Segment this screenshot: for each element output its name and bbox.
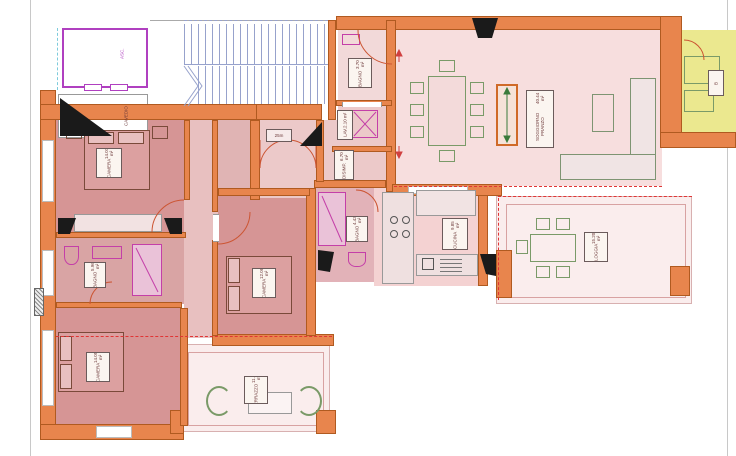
part-corridor-right-a (212, 120, 218, 212)
part-hall2-bottom (314, 180, 386, 188)
window-left-3 (42, 330, 54, 406)
dining-chair-l3 (410, 126, 424, 138)
washing-machine (352, 110, 378, 138)
burner-4 (402, 230, 410, 238)
bed-2-pillow-bottom (60, 364, 72, 389)
burner-1 (390, 216, 398, 224)
floor-plan: ASC. CAVEDIO (0, 0, 736, 456)
dining-chair-r3 (470, 126, 484, 138)
bed-1-pillow-left (88, 132, 114, 144)
wall-under-stairs (40, 104, 258, 120)
drainer-kitchen (440, 258, 462, 272)
burner-3 (390, 230, 398, 238)
sofa-seat-horizontal (560, 154, 656, 180)
opening-dash-corridor (213, 214, 219, 242)
page-edge-left (30, 0, 31, 456)
dining-table (428, 76, 466, 146)
lift-wall-dashed (57, 28, 58, 90)
lift-label: ASC. (116, 40, 128, 68)
label-bedroom-3: CAMERA12.08 m² (252, 268, 276, 298)
wall-hatch-marker (34, 288, 44, 316)
label-terrace: TERRAZZO11.80 m² (244, 376, 268, 404)
part-bed1-bottom (56, 232, 186, 238)
stair-flight-upper (184, 24, 328, 64)
loggia-chair-left (516, 240, 528, 254)
part-bed1-right (184, 120, 190, 200)
sink-kitchen (422, 258, 434, 270)
dining-chair-r1 (470, 82, 484, 94)
shower-bath2 (318, 192, 346, 246)
label-loggia: LOGGIA15.20 m² (584, 232, 608, 262)
dashed-terrace-top (56, 336, 332, 337)
dashed-loggia-left (498, 198, 499, 300)
label-neighbor: B (708, 70, 724, 96)
part-bath1-bottom (56, 302, 182, 308)
part-bed3-right (306, 188, 316, 336)
label-bathroom-1: BAGNO5.96 m² (84, 262, 106, 288)
label-bathroom-2: BAGNO4.43 m² (346, 216, 368, 242)
lift-door-mark-left (84, 84, 102, 91)
label-bedroom-2: CAMERA14.05 m² (86, 352, 110, 382)
stair-landing-divider (184, 64, 328, 65)
dining-chair-l2 (410, 104, 424, 116)
part-corridor-right-b (212, 240, 218, 336)
opening-dash-laundry (342, 102, 382, 107)
kitchen-counter-left (382, 192, 414, 284)
loggia-chair-b1 (536, 266, 550, 278)
sink-bath1 (92, 246, 122, 259)
label-wc: BAGNO3.70 m² (348, 58, 372, 88)
shower-bath1 (132, 244, 162, 296)
dashed-loggia-top (498, 196, 692, 197)
coffee-table (592, 94, 614, 132)
dining-chair-l1 (410, 82, 424, 94)
wall-mid-vertical (386, 20, 396, 192)
loggia-chair-b2 (556, 266, 570, 278)
bed-2-pillow-top (60, 336, 72, 361)
kitchen-island (416, 190, 476, 216)
closet-bed1 (74, 214, 162, 232)
toilet-bath1 (64, 246, 79, 265)
dining-chair-bottom (439, 150, 455, 162)
part-entry-bottom (218, 188, 310, 196)
bed-3-pillow-top (228, 258, 240, 283)
toilet-bath2 (348, 252, 366, 267)
label-disimpegno: DISIMP.6.70 m² (334, 150, 354, 180)
dashed-living-bottom (394, 186, 662, 187)
post-terrace-right (316, 410, 336, 434)
loggia-table (530, 234, 576, 262)
nightstand-1b (152, 126, 168, 139)
nightstand-1a (66, 126, 82, 139)
sink-wc (342, 34, 360, 45)
dining-chair-r2 (470, 104, 484, 116)
lift-cabin (62, 28, 148, 88)
sideboard (496, 84, 518, 146)
stair-flight-lower (198, 66, 328, 104)
wall-entry-top (256, 104, 322, 120)
stair-dashed-edge (184, 20, 328, 21)
bed-3-pillow-bottom (228, 286, 240, 311)
shaft-label: CAVEDIO (120, 98, 132, 134)
wall-kitchen-right (478, 186, 488, 286)
loggia-chair-t1 (536, 218, 550, 230)
label-laundry: LAV.2.10 m² (337, 110, 353, 140)
wall-bed2-right (180, 308, 188, 426)
lift-door-mark-right (110, 84, 128, 91)
label-living: SOGGIORNO PRANZO40.44 m² (526, 90, 554, 148)
burner-2 (402, 216, 410, 224)
label-entry-dim: 25m (266, 129, 292, 142)
window-bottom-1 (96, 426, 132, 438)
part-entry-right (316, 120, 324, 182)
post-loggia-right (670, 266, 690, 296)
terrace-chair-left (206, 386, 232, 416)
label-kitchen: CUCINA9.85 m² (442, 218, 468, 250)
loggia-chair-t2 (556, 218, 570, 230)
terrace-chair-right (296, 386, 322, 416)
wall-neighbor-bottom (660, 132, 736, 148)
wall-right-upper (660, 16, 682, 146)
label-bedroom-1: CAMERA14.01 m² (96, 148, 122, 178)
dining-chair-top (439, 60, 455, 72)
window-left-1 (42, 140, 54, 202)
wall-wc-left (328, 20, 336, 120)
